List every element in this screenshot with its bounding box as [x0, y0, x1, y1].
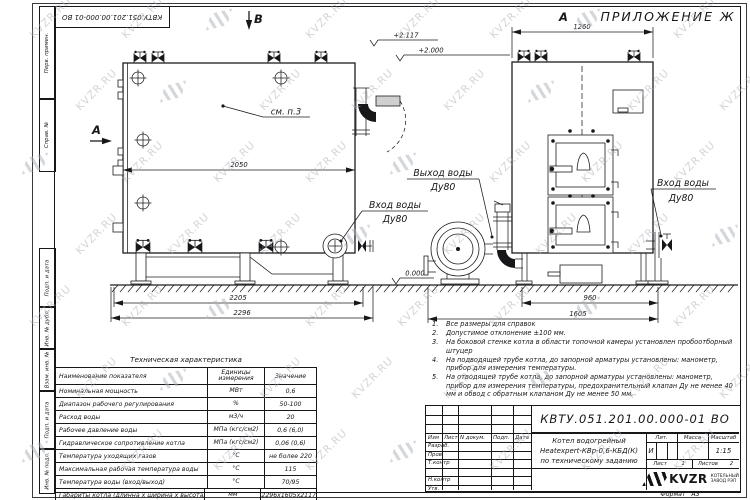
ground-line: [110, 285, 738, 292]
elevation-mark-top1: +2.117: [370, 32, 438, 47]
dim-body-length: 2050: [230, 161, 247, 169]
dim-overall-depth: 1605: [569, 310, 586, 318]
view-label-a-left: А: [91, 123, 101, 137]
dimension-base-depth: 960: [522, 287, 658, 323]
boiler-front-view: [512, 62, 672, 284]
view-label-a-top: А: [558, 10, 568, 24]
callout-water-inlet-right: Вход воды Ду80: [651, 178, 716, 238]
dim-overall-length: 2296: [233, 309, 251, 317]
water-inlet-left-label: Вход воды: [369, 200, 421, 211]
appendix-title: ПРИЛОЖЕНИЕ Ж: [601, 9, 736, 24]
water-inlet-left-size: Ду80: [382, 214, 408, 225]
dimension-overall-depth: 1605: [428, 287, 658, 323]
front-view-valves: [518, 50, 640, 62]
dimension-front-width: 1260: [512, 23, 653, 58]
boiler-drawing: 2050 2205 2296 1260 960: [0, 0, 750, 500]
section-arrow-a-left: А: [90, 123, 112, 144]
elevation-top2: +2.000: [418, 47, 443, 55]
water-outlet-size: Ду80: [430, 182, 456, 193]
see-note-label: см. п.3: [271, 108, 302, 118]
water-inlet-right-size: Ду80: [668, 193, 694, 204]
dimension-base-length: 2205: [114, 287, 363, 307]
dimension-overall-length: 2296: [111, 287, 373, 322]
dim-base-length: 2205: [229, 294, 246, 302]
dim-front-width: 1260: [573, 23, 590, 31]
elevation-top1: +2.117: [393, 32, 419, 40]
water-outlet-label: Выход воды: [413, 168, 472, 179]
water-outlet-elbow: [352, 88, 406, 152]
section-arrow-b-top: В: [246, 11, 263, 30]
dim-base-depth: 960: [584, 294, 597, 302]
blower-fan: [424, 222, 493, 284]
elevation-mark-top2: +2.000: [396, 47, 510, 62]
water-inlet-right-label: Вход воды: [657, 178, 709, 189]
elevation-ground: 0.000: [405, 270, 424, 278]
drawing-sheet: Перв. примен. Справ. № Подп. и дата Инв.…: [0, 0, 750, 500]
view-label-b-top: В: [254, 12, 263, 26]
